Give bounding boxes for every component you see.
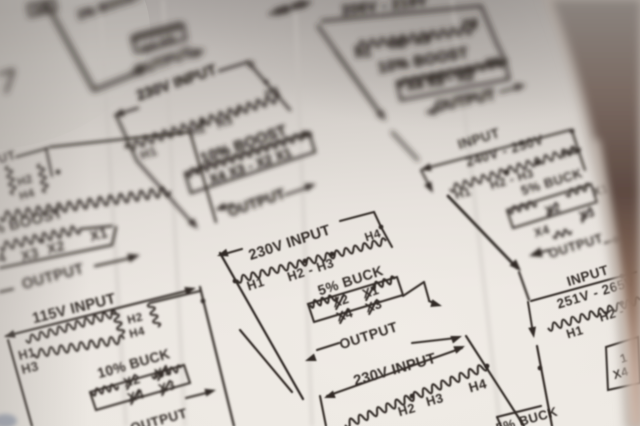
- svg-text:H3: H3: [413, 32, 431, 48]
- svg-text:H4: H4: [462, 16, 479, 30]
- svg-text:H2: H2: [389, 36, 407, 52]
- svg-text:H1: H1: [354, 45, 372, 61]
- svg-text:X1: X1: [485, 54, 503, 71]
